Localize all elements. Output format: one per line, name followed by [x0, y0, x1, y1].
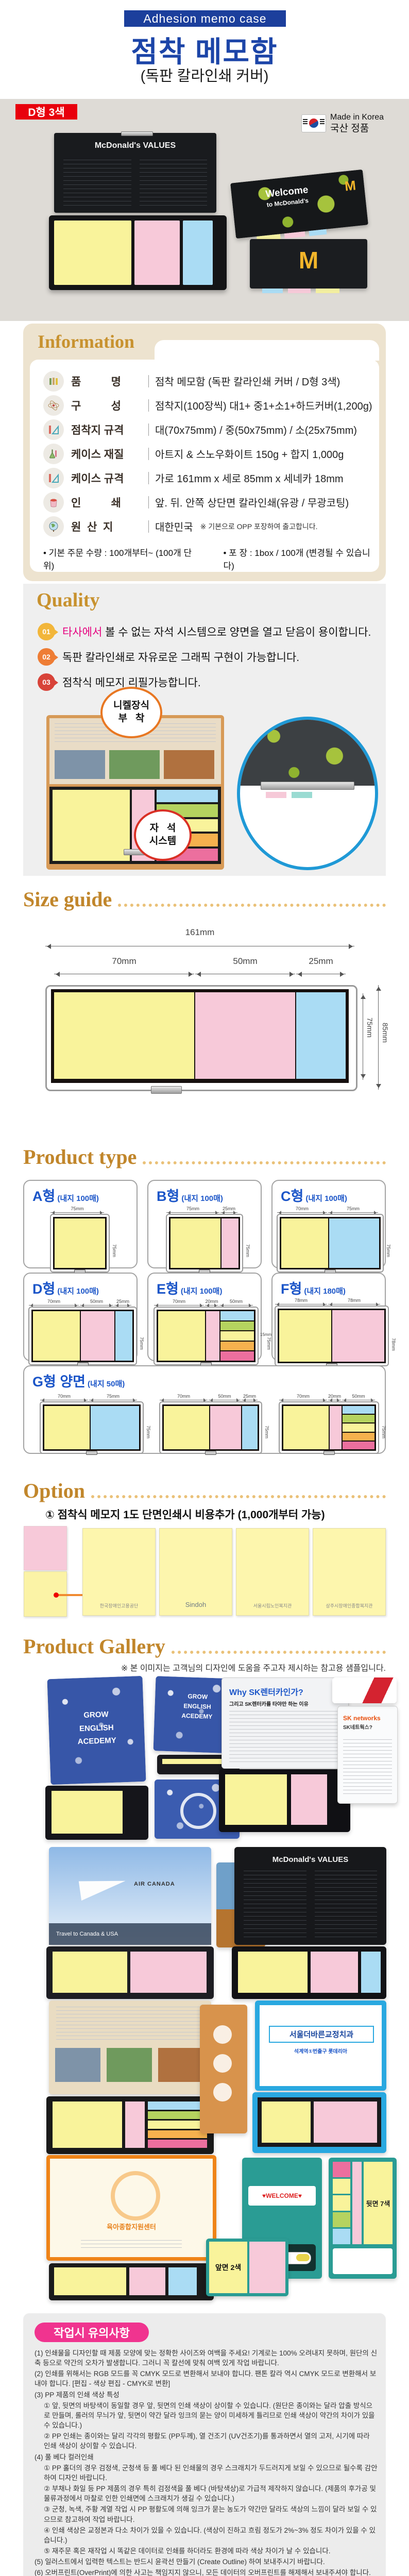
side-label: 78mm	[391, 1338, 396, 1351]
white-card	[333, 2248, 393, 2274]
card-type-c: C형(내지 100매) 70mm 75mm 75mm	[271, 1180, 386, 1268]
memo-blue	[183, 221, 213, 285]
precaution-line: ① 앞, 뒷면의 바탕색이 동일할 경우 앞, 뒷면의 인쇄 색상이 상이할 수…	[35, 2401, 378, 2430]
pen-tip	[296, 2254, 310, 2261]
info-label: 구 성	[71, 398, 142, 413]
type-pages: (내지 180매)	[304, 1287, 346, 1296]
type-name: B형	[157, 1189, 179, 1204]
made-in-en: Made in Korea	[330, 112, 384, 123]
icon-circle	[213, 2083, 232, 2102]
precaution-line: (5) 일러스트에서 입력한 텍스트는 반드시 윤곽선 만들기 (Create …	[35, 2557, 378, 2567]
text-column	[63, 160, 131, 207]
gallery-title: Product Gallery	[23, 1636, 165, 1657]
precaution-line: ④ 인쇄 색상은 교정본과 다소 차이가 있을 수 있습니다. (색상이 진하고…	[35, 2526, 378, 2545]
trigram-icon	[303, 119, 308, 120]
icon-circle	[213, 2054, 232, 2073]
mini-diagram-g1: 70mm 75mm 75mm	[40, 1391, 151, 1454]
note-edge-yellow	[316, 289, 339, 293]
nickel-clip-zoom	[261, 782, 354, 790]
mini-case	[159, 1401, 262, 1454]
sk-list-lines	[229, 1711, 341, 1762]
trigram-icon	[320, 121, 325, 122]
memo-yellow	[164, 1406, 209, 1449]
stack-label: 15mm	[260, 1332, 271, 1337]
grow-cover-open: GROW ENGLISH ACEDEMY	[47, 1676, 146, 1785]
precaution-line: (6) 오버프린트(OverPrint)에 의한 사고는 책임지지 않으니, 모…	[35, 2568, 378, 2576]
divider	[148, 423, 149, 436]
card-title: E형(내지 100매)	[157, 1278, 222, 1298]
size-guide-title: Size guide	[23, 889, 112, 910]
memo-blue	[91, 1406, 139, 1449]
quality-item: 01 타사에서 볼 수 없는 자석 시스템으로 양면을 열고 닫음이 용이합니다…	[38, 623, 371, 640]
gallery-note: ※ 본 이미지는 고객님의 디자인에 도움을 주고자 제시하는 참고용 샘플입니…	[23, 1661, 386, 1673]
mcd-cover: McDonald's VALUES	[234, 1847, 386, 1945]
welcome-case-cover: Welcome to McDonald's M	[230, 170, 368, 239]
side-label: 75mm	[146, 1426, 151, 1438]
card-type-a: A형(내지 100매) 75mm 75mm	[23, 1180, 138, 1268]
text-column	[315, 1871, 378, 1939]
sk-lines	[343, 1739, 392, 1796]
photo-thumb	[107, 2048, 152, 2082]
type-badge: D형 3색	[15, 104, 77, 120]
number-badge: 03	[38, 673, 55, 691]
text-column	[244, 1871, 306, 1939]
photo-thumb	[158, 2048, 203, 2082]
icon-circle	[213, 2025, 232, 2044]
info-row: 구 성 점착지(100장씩) 대1+ 중1+소1+하드커버(1,200g)	[43, 393, 379, 417]
type-name: G형 양면	[32, 1374, 86, 1389]
note-tip-pink	[266, 792, 286, 798]
option-pink-note	[24, 1526, 67, 1570]
airplane-icon	[79, 1875, 127, 1901]
precaution-line: ⑤ 재주문 혹은 재작업 시 똑같은 데이터로 인쇄를 하더라도 환경에 따라 …	[35, 2546, 378, 2556]
info-label: 인 쇄	[71, 495, 142, 510]
zoom-inset-oval	[237, 717, 378, 870]
card-title: B형(내지 100매)	[157, 1185, 223, 1205]
dim-label: 78mm	[275, 1298, 328, 1303]
sk-tray	[219, 1769, 350, 1832]
quality-text-rest: 볼 수 없는 자석 시스템으로 양면을 열고 닫음이 용이합니다.	[102, 626, 371, 638]
back-label: 뒷면 7색	[364, 2162, 393, 2244]
side-label: 75mm	[386, 1244, 391, 1257]
dotted-leader	[172, 1651, 386, 1654]
memo-yellow-small	[220, 1331, 254, 1341]
dim-label: 70mm	[28, 1299, 79, 1304]
card-title: D형(내지 100매)	[32, 1278, 99, 1298]
min-order: • 기본 주문 수량 : 100개부터~ (100개 단위)	[43, 546, 200, 571]
childcare-tray	[49, 2263, 214, 2300]
doodle-circle	[180, 1793, 216, 1829]
open-case-tray	[49, 215, 227, 290]
case-notes	[54, 992, 346, 1079]
info-row: 케이스 재질 아트지 & 스노우화이트 150g + 합지 1,000g	[43, 442, 379, 466]
dim-label: 70mm	[279, 1394, 328, 1399]
memo-pink	[130, 1952, 207, 1993]
strip	[333, 2212, 350, 2228]
dental-sub: 석계역①번출구 롯데리아	[260, 2047, 382, 2055]
divider	[148, 496, 149, 509]
memo-yellow	[55, 1218, 105, 1268]
mini-case	[166, 1214, 243, 1273]
aircanada-logo: AIR CANADA	[134, 1881, 175, 1887]
mini-case	[40, 1401, 144, 1454]
mini-diagram: 75mm 75mm	[50, 1204, 117, 1273]
sk-red-cover	[332, 1677, 397, 1703]
note-edge-blue	[309, 229, 327, 236]
memo-blue	[343, 1406, 374, 1414]
memo-pink	[314, 2102, 377, 2143]
memo-stack	[148, 2102, 207, 2148]
trigram-icon	[303, 123, 308, 124]
print-photos	[55, 2048, 203, 2082]
orange-cover-side	[200, 2005, 247, 2133]
gallery-row-1: GROW ENGLISH ACEDEMY GROW ENGLISH ACEDEM…	[0, 1677, 409, 1843]
memo-yellow	[54, 2267, 126, 2295]
printed-note: 서울시립노인복지관	[236, 1528, 309, 1616]
grow-text: ACEDEMY	[49, 1733, 145, 1750]
mini-diagram-g3: 70mm 20mm 50mm 75mm	[279, 1391, 386, 1454]
mini-case	[279, 1401, 379, 1454]
memo-b	[361, 1952, 381, 1993]
printed-logo: 한국장애인고용공단	[83, 1603, 155, 1609]
memo-blue	[242, 1406, 258, 1449]
info-row: 원 산 지 대한민국 ※ 기본으로 OPP 포장하여 출고합니다.	[43, 514, 379, 538]
memo-yellow	[281, 1218, 328, 1268]
card-type-g: G형 양면(내지 50매) 70mm 75mm 75mm 70mm 50mm 2…	[23, 1365, 386, 1454]
dim-arrow-houter	[378, 985, 379, 1090]
type-pages: (내지 100매)	[305, 1194, 347, 1203]
korea-flag-icon	[301, 114, 326, 132]
dim-label: 75mm	[50, 1206, 105, 1211]
note-edge-blue	[262, 289, 283, 293]
gallery-row-2: AIR CANADA Travel to Canada & USA McDona…	[0, 1847, 409, 2001]
divider	[148, 375, 149, 387]
academy-tray	[46, 2096, 214, 2154]
mini-diagram-g2: 70mm 50mm 25mm 75mm	[159, 1391, 269, 1454]
dental-insert	[258, 2097, 381, 2147]
mini-case	[277, 1214, 384, 1273]
sk-networks-q: SK네트웍스?	[343, 1723, 392, 1731]
welcome-banner: ♥WELCOME♥	[248, 2186, 316, 2206]
nickel-clip	[121, 131, 153, 136]
address-lines	[81, 2240, 182, 2248]
open-case-cover: McDonald's VALUES	[54, 133, 216, 213]
mini-diagram: 75mm 25mm 75mm	[166, 1204, 250, 1273]
type-name: D형	[32, 1281, 55, 1297]
opp-note: ※ 기본으로 OPP 포장하여 출고합니다.	[200, 521, 318, 532]
dotted-leader	[118, 904, 386, 907]
dim-label: 75mm	[89, 1394, 138, 1399]
type-pages: (내지 50매)	[88, 1380, 125, 1388]
dim-label: 50mm	[79, 1299, 114, 1304]
memo-pink-50mm	[195, 992, 295, 1079]
info-row: 품 명 점착 메모함 (독판 칼라인쇄 커버 / D형 3색)	[43, 369, 379, 393]
egg-logo	[111, 2171, 160, 2221]
dim-arrow-w3	[296, 974, 346, 974]
information-title: Information	[38, 331, 134, 352]
memo-y	[238, 1952, 308, 1993]
cover-title: McDonald's VALUES	[54, 141, 216, 150]
mcdonalds-m-icon: M	[250, 246, 367, 274]
memo-pink	[332, 1310, 384, 1362]
mini-clasp	[86, 1451, 97, 1455]
ruler-triangle-icon	[43, 419, 64, 440]
divider	[148, 399, 149, 412]
info-value: 가로 161mm x 세로 85mm x 세네카 18mm	[155, 470, 344, 485]
dim-arrow-hinner	[363, 993, 363, 1080]
photo-thumb	[55, 750, 105, 779]
pattern-cover	[240, 720, 375, 786]
nickel-bubble: 니켈장식 부 착	[100, 687, 162, 738]
memo-yellow-small	[148, 2121, 207, 2129]
mcdonalds-m-icon: M	[344, 177, 357, 194]
memo-blue	[115, 1311, 132, 1361]
strip	[333, 2195, 350, 2211]
trigram-icon	[320, 119, 325, 120]
memo-deeppink	[220, 1351, 254, 1361]
sk-sub: 그리고 SK렌터카를 타야만 하는 이유	[229, 1700, 341, 1707]
strip-stack	[333, 2162, 350, 2244]
precautions-panel: 작업시 유의사항 (1) 인쇄물을 디자인할 때 제품 모양에 맞는 정확한 사…	[23, 2313, 386, 2576]
memo-pink-strip	[125, 2102, 145, 2148]
memo-yellow	[44, 1406, 90, 1449]
divider	[148, 520, 149, 533]
memo-green	[343, 1415, 374, 1422]
memo-yellow	[262, 2102, 311, 2143]
bubble-text: 니켈장식	[113, 700, 149, 713]
side-label: 75mm	[260, 1337, 271, 1350]
type-name: E형	[157, 1281, 179, 1297]
memo-pink	[291, 1774, 327, 1825]
childcare-cover: 육아종합지원센터	[46, 2155, 216, 2261]
aircanada-cover: AIR CANADA Travel to Canada & USA	[49, 1847, 211, 1945]
dim-w2: 50mm	[195, 956, 295, 967]
dim-arrow-total	[45, 946, 354, 946]
mini-case	[28, 1307, 137, 1365]
info-row: 인 쇄 앞. 뒤. 안쪽 상단면 칼라인쇄(유광 / 무광코팅)	[43, 490, 379, 514]
sk-networks-logo: SK networks	[343, 1715, 392, 1722]
paint-bucket-icon	[43, 492, 64, 513]
card-type-e: E형(내지 100매) 70mm 20mm 50mm	[147, 1273, 262, 1361]
quality-photo-open-case	[46, 715, 224, 870]
hero-photo: D형 3색 Made in Korea 국산 정품 McDonald's VAL…	[0, 99, 409, 321]
memo-blue	[168, 2267, 197, 2295]
card-title: G형 양면(내지 50매)	[32, 1370, 125, 1391]
magnet-bubble: 자 석 시스템	[134, 809, 192, 861]
quality-item: 02 독판 칼라인쇄로 자유로운 그래픽 구현이 가능합니다.	[38, 648, 371, 666]
dim-label: 50mm	[219, 1299, 253, 1304]
strip	[333, 2162, 350, 2177]
dim-w1: 70mm	[54, 956, 194, 967]
precautions-body: (1) 인쇄물을 디자인할 때 제품 모양에 맞는 정확한 사이즈와 여백을 주…	[35, 2347, 378, 2576]
card-title: A형(내지 100매)	[32, 1185, 99, 1205]
memo-deeppink	[148, 2140, 207, 2148]
dim-total: 161mm	[45, 927, 354, 938]
number-badge: 01	[38, 623, 55, 640]
dental-cover: 서울더바른교정치과 석계역①번출구 롯데리아	[255, 2001, 386, 2091]
dim-label: 70mm	[277, 1206, 328, 1211]
product-type-title: Product type	[23, 1147, 137, 1167]
trigram-icon	[320, 123, 325, 124]
type-pages: (내지 100매)	[181, 1194, 223, 1203]
quality-text: 독판 칼라인쇄로 자유로운 그래픽 구현이 가능합니다.	[62, 649, 299, 665]
sk-networks-card: SK networks SK네트웍스?	[337, 1706, 398, 1804]
packing: • 포 장 : 1box / 100개 (변경될 수 있습니다)	[223, 546, 379, 571]
dental-tray	[252, 2092, 386, 2153]
memo-green	[148, 2111, 207, 2120]
dim-arrow-w2	[195, 974, 295, 974]
made-in-kr: 국산 정품	[330, 123, 384, 135]
memo-blue	[329, 1218, 379, 1268]
academy-inner	[49, 2001, 211, 2094]
mini-diagram: 78mm 78mm 78mm	[275, 1295, 396, 1366]
precaution-line: ② 부채나 화일 등 PP 제품의 경우 특히 검정색을 풀 베다 (바탕색상)…	[35, 2484, 378, 2503]
highlight-text: 타사에서	[62, 626, 102, 638]
dim-label: 78mm	[328, 1298, 381, 1303]
category-tag: Adhesion memo case	[124, 10, 286, 27]
info-row: 케이스 규격 가로 161mm x 세로 85mm x 세네카 18mm	[43, 466, 379, 490]
taegeuk-icon	[309, 118, 318, 128]
back-7color-case: 뒷면 7색	[329, 2158, 397, 2279]
cover-text-columns	[63, 160, 207, 207]
memo-yellow	[279, 1310, 331, 1362]
memo-pink	[221, 1218, 238, 1268]
memo-pink	[129, 2267, 165, 2295]
type-pages: (내지 100매)	[181, 1287, 223, 1296]
info-value: 점착 메모함 (독판 칼라인쇄 커버 / D형 3색)	[155, 374, 340, 388]
memo-yellow	[158, 1311, 205, 1361]
memo-pink	[206, 1311, 219, 1361]
card-title: C형(내지 100매)	[281, 1185, 347, 1205]
memo-yellow	[225, 1774, 287, 1825]
memo-yellow	[283, 1406, 329, 1449]
order-info: • 기본 주문 수량 : 100개부터~ (100개 단위) • 포 장 : 1…	[43, 546, 379, 571]
closed-case: M	[250, 239, 367, 289]
note-edge-pink	[284, 231, 305, 239]
pink-strip	[352, 2162, 362, 2244]
dental-title: 서울더바른교정치과	[269, 2026, 374, 2043]
precaution-line: (2) 인쇄를 위해서는 RGB 모드를 꼭 CMYK 모드로 변환해서 보내야…	[35, 2369, 378, 2388]
front-label: 앞면 2색	[209, 2242, 247, 2293]
side-label: 75mm	[245, 1244, 250, 1257]
printed-logo: 상주시장애인종합복지관	[313, 1603, 385, 1609]
dim-w3: 25mm	[296, 956, 346, 967]
precaution-line: (3) PP 제품의 인쇄 색상 특성	[35, 2390, 378, 2400]
mini-case	[275, 1306, 389, 1366]
mini-diagram: 70mm 20mm 50mm 15mm	[154, 1296, 271, 1365]
grow-tray	[45, 1786, 148, 1840]
info-label: 점착지 규격	[71, 422, 142, 437]
gallery-row-3: 서울더바른교정치과 석계역①번출구 롯데리아	[0, 2001, 409, 2155]
printed-note: 상주시장애인종합복지관	[313, 1528, 386, 1616]
size-guide-header: Size guide	[23, 889, 386, 910]
memo-stack	[343, 1406, 374, 1449]
strip	[333, 2179, 350, 2194]
magnet-clasp	[151, 1086, 182, 1094]
option-title: Option	[23, 1481, 85, 1501]
memo-blue	[157, 790, 218, 802]
precaution-line: (4) 풀 베다 컬러인쇄	[35, 2452, 378, 2462]
memo-green	[220, 1321, 254, 1331]
dotted-leader	[91, 1495, 386, 1498]
info-label: 품 명	[71, 374, 142, 389]
memo-yellow	[53, 790, 130, 861]
divider	[148, 472, 149, 484]
dim-arrow-w1	[54, 974, 194, 974]
books-icon	[43, 371, 64, 392]
memo-orange	[343, 1433, 374, 1440]
side-label: 75mm	[264, 1426, 269, 1438]
globe-icon	[43, 516, 64, 537]
product-detail-page: Adhesion memo case 점착 메모함 (독판 칼라인쇄 커버) D…	[0, 0, 409, 2576]
card-type-d: D형(내지 100매) 70mm 50mm 25mm 75mm	[23, 1273, 138, 1361]
memo-deeppink	[343, 1442, 374, 1449]
childcare-title: 육아종합지원센터	[50, 2222, 213, 2231]
dim-h-outer: 85mm	[381, 1023, 389, 1043]
strip	[333, 2229, 350, 2244]
memo-orange	[148, 2130, 207, 2139]
note-edge-pink	[288, 289, 311, 293]
aircanada-caption: Travel to Canada & USA	[49, 1923, 211, 1945]
dim-label: 70mm	[40, 1394, 89, 1399]
memo-yellow-70mm	[54, 992, 194, 1079]
made-in-label: Made in Korea 국산 정품	[330, 112, 384, 135]
memo-blue-25mm	[296, 992, 346, 1079]
size-guide-case	[45, 985, 357, 1091]
print-lines	[56, 2007, 204, 2041]
info-value: 앞. 뒤. 안쪽 상단면 칼라인쇄(유광 / 무광코팅)	[155, 495, 349, 510]
mcd-text-cols	[244, 1871, 377, 1939]
memo-yellow	[33, 1311, 80, 1361]
dim-label: 70mm	[159, 1394, 208, 1399]
memo-stack	[220, 1311, 254, 1361]
card-type-f: F형(내지 180매) 78mm 78mm 78mm	[271, 1273, 386, 1361]
dim-label: 70mm	[154, 1299, 204, 1304]
quality-panel: Quality 01 타사에서 볼 수 없는 자석 시스템으로 양면을 열고 닫…	[23, 584, 386, 876]
trigram-icon	[303, 121, 308, 122]
memo-orange	[220, 1342, 254, 1351]
photo-thumb	[55, 2048, 100, 2082]
flask-icon	[43, 444, 64, 464]
panel-tab-shape	[155, 340, 379, 361]
mini-diagram: 70mm 75mm 75mm	[277, 1204, 391, 1273]
mini-case	[154, 1307, 259, 1365]
dim-label: 75mm	[166, 1206, 220, 1211]
sk-title: Why SK렌터카인가?	[229, 1685, 341, 1698]
option-line: ① 점착식 메모지 1도 단면인쇄시 비용추가 (1,000개부터 가능)	[45, 1506, 325, 1522]
info-row: 점착지 규격 대(70x75mm) / 중(50x75mm) / 소(25x75…	[43, 417, 379, 442]
info-label: 케이스 규격	[71, 470, 142, 486]
precaution-line: ① PP 홀더의 경우 검정색, 군청색 등 풀 베다 된 인쇄물의 경우 스크…	[35, 2463, 378, 2483]
bubble-text: 자 석	[150, 822, 176, 835]
number-badge: 02	[38, 648, 55, 666]
side-label: 75mm	[381, 1426, 386, 1438]
memo-pink	[210, 1406, 241, 1449]
precaution-line: ③ 군청, 녹색, 주황 계열 작업 시 PP 평활도에 의해 잉크가 묻는 농…	[35, 2504, 378, 2524]
made-in-korea: Made in Korea 국산 정품	[301, 112, 384, 135]
photo-thumb	[109, 750, 160, 779]
mcd-tray	[232, 1946, 386, 1999]
quality-list: 01 타사에서 볼 수 없는 자석 시스템으로 양면을 열고 닫음이 용이합니다…	[38, 623, 371, 691]
info-value: 아트지 & 스노우화이트 150g + 합지 1,000g	[155, 446, 344, 461]
ruler-triangle-icon	[43, 468, 64, 488]
sk-cover: Why SK렌터카인가? 그리고 SK렌터카를 타야만 하는 이유	[221, 1677, 349, 1769]
printed-note: Sindoh	[159, 1528, 232, 1616]
side-label: 75mm	[112, 1244, 117, 1257]
type-name: A형	[32, 1189, 55, 1204]
info-label: 원 산 지	[71, 519, 142, 534]
text-column	[140, 160, 208, 207]
